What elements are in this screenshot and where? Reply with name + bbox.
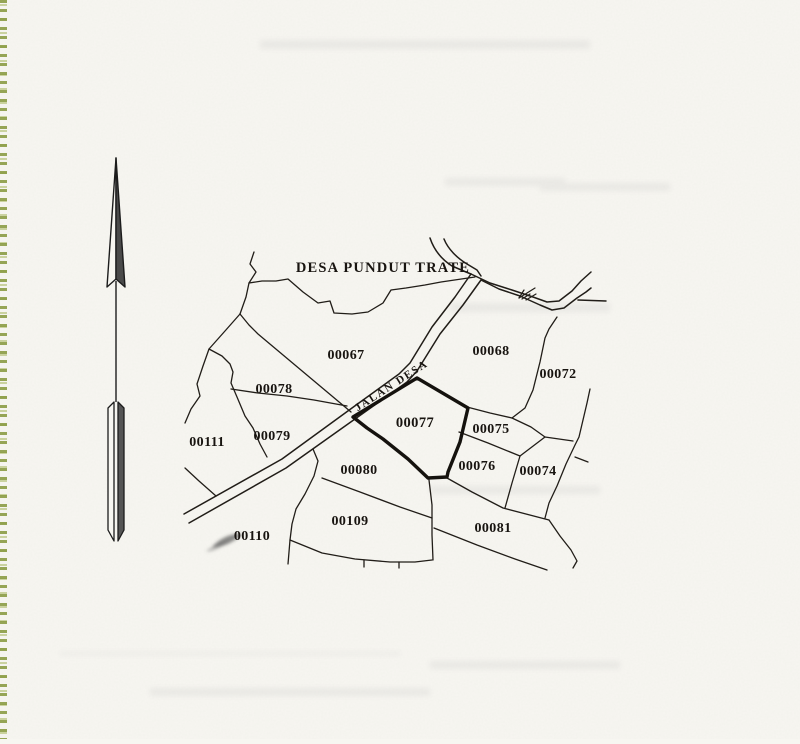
parcel-label: 00067 bbox=[328, 348, 365, 363]
parcel-label: 00081 bbox=[475, 521, 512, 536]
parcel-label: 00079 bbox=[254, 429, 291, 444]
scanned-paper-background: DESA PUNDUT TRATE JALAN DESA 00067 00068… bbox=[0, 0, 800, 739]
parcel-label: 00109 bbox=[332, 514, 369, 529]
parcel-label: 00111 bbox=[189, 435, 224, 450]
parcel-label: 00110 bbox=[234, 529, 270, 544]
parcel-map: DESA PUNDUT TRATE JALAN DESA 00067 00068… bbox=[0, 0, 800, 739]
parcel-label: 00075 bbox=[473, 422, 510, 437]
parcel-label: 00076 bbox=[459, 459, 496, 474]
parcel-label: 00068 bbox=[473, 344, 510, 359]
parcel-label: 00078 bbox=[256, 382, 293, 397]
village-title: DESA PUNDUT TRATE bbox=[296, 260, 470, 276]
parcel-label: 00080 bbox=[341, 463, 378, 478]
parcel-label: 00074 bbox=[520, 464, 557, 479]
parcel-label-highlighted: 00077 bbox=[396, 415, 434, 431]
parcel-label: 00072 bbox=[540, 367, 577, 382]
scan-noise-texture bbox=[0, 0, 800, 739]
paper-edge-marks bbox=[0, 0, 7, 739]
